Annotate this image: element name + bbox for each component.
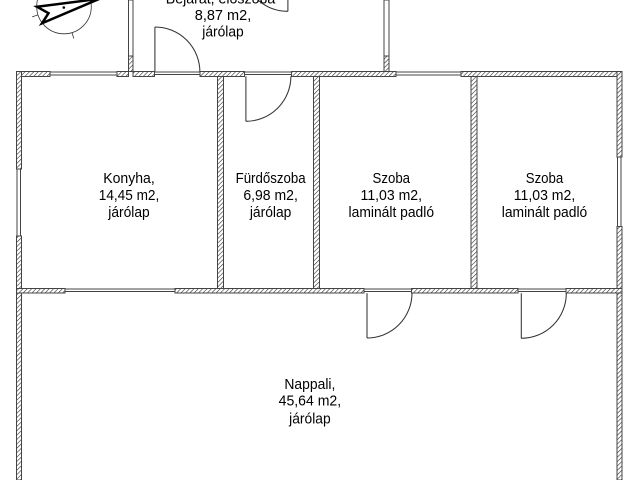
svg-text:6,98 m2,: 6,98 m2, (243, 187, 298, 204)
svg-text:Konyha,: Konyha, (103, 170, 155, 187)
svg-text:Fürdőszoba: Fürdőszoba (236, 170, 307, 187)
svg-text:Nappali,: Nappali, (284, 376, 335, 393)
svg-text:járólap: járólap (249, 204, 291, 221)
svg-text:11,03 m2,: 11,03 m2, (514, 187, 576, 204)
svg-text:14,45 m2,: 14,45 m2, (99, 187, 160, 204)
svg-text:járólap: járólap (288, 410, 330, 427)
svg-text:járólap: járólap (201, 24, 243, 41)
svg-text:8,87 m2,: 8,87 m2, (195, 7, 252, 24)
svg-text:Szoba: Szoba (526, 170, 564, 187)
svg-text:laminált padló: laminált padló (502, 204, 588, 221)
svg-text:laminált padló: laminált padló (349, 204, 435, 221)
svg-text:11,03 m2,: 11,03 m2, (361, 187, 423, 204)
svg-text:Szoba: Szoba (373, 170, 411, 187)
svg-text:45,64 m2,: 45,64 m2, (279, 393, 342, 410)
svg-text:járólap: járólap (107, 204, 149, 221)
